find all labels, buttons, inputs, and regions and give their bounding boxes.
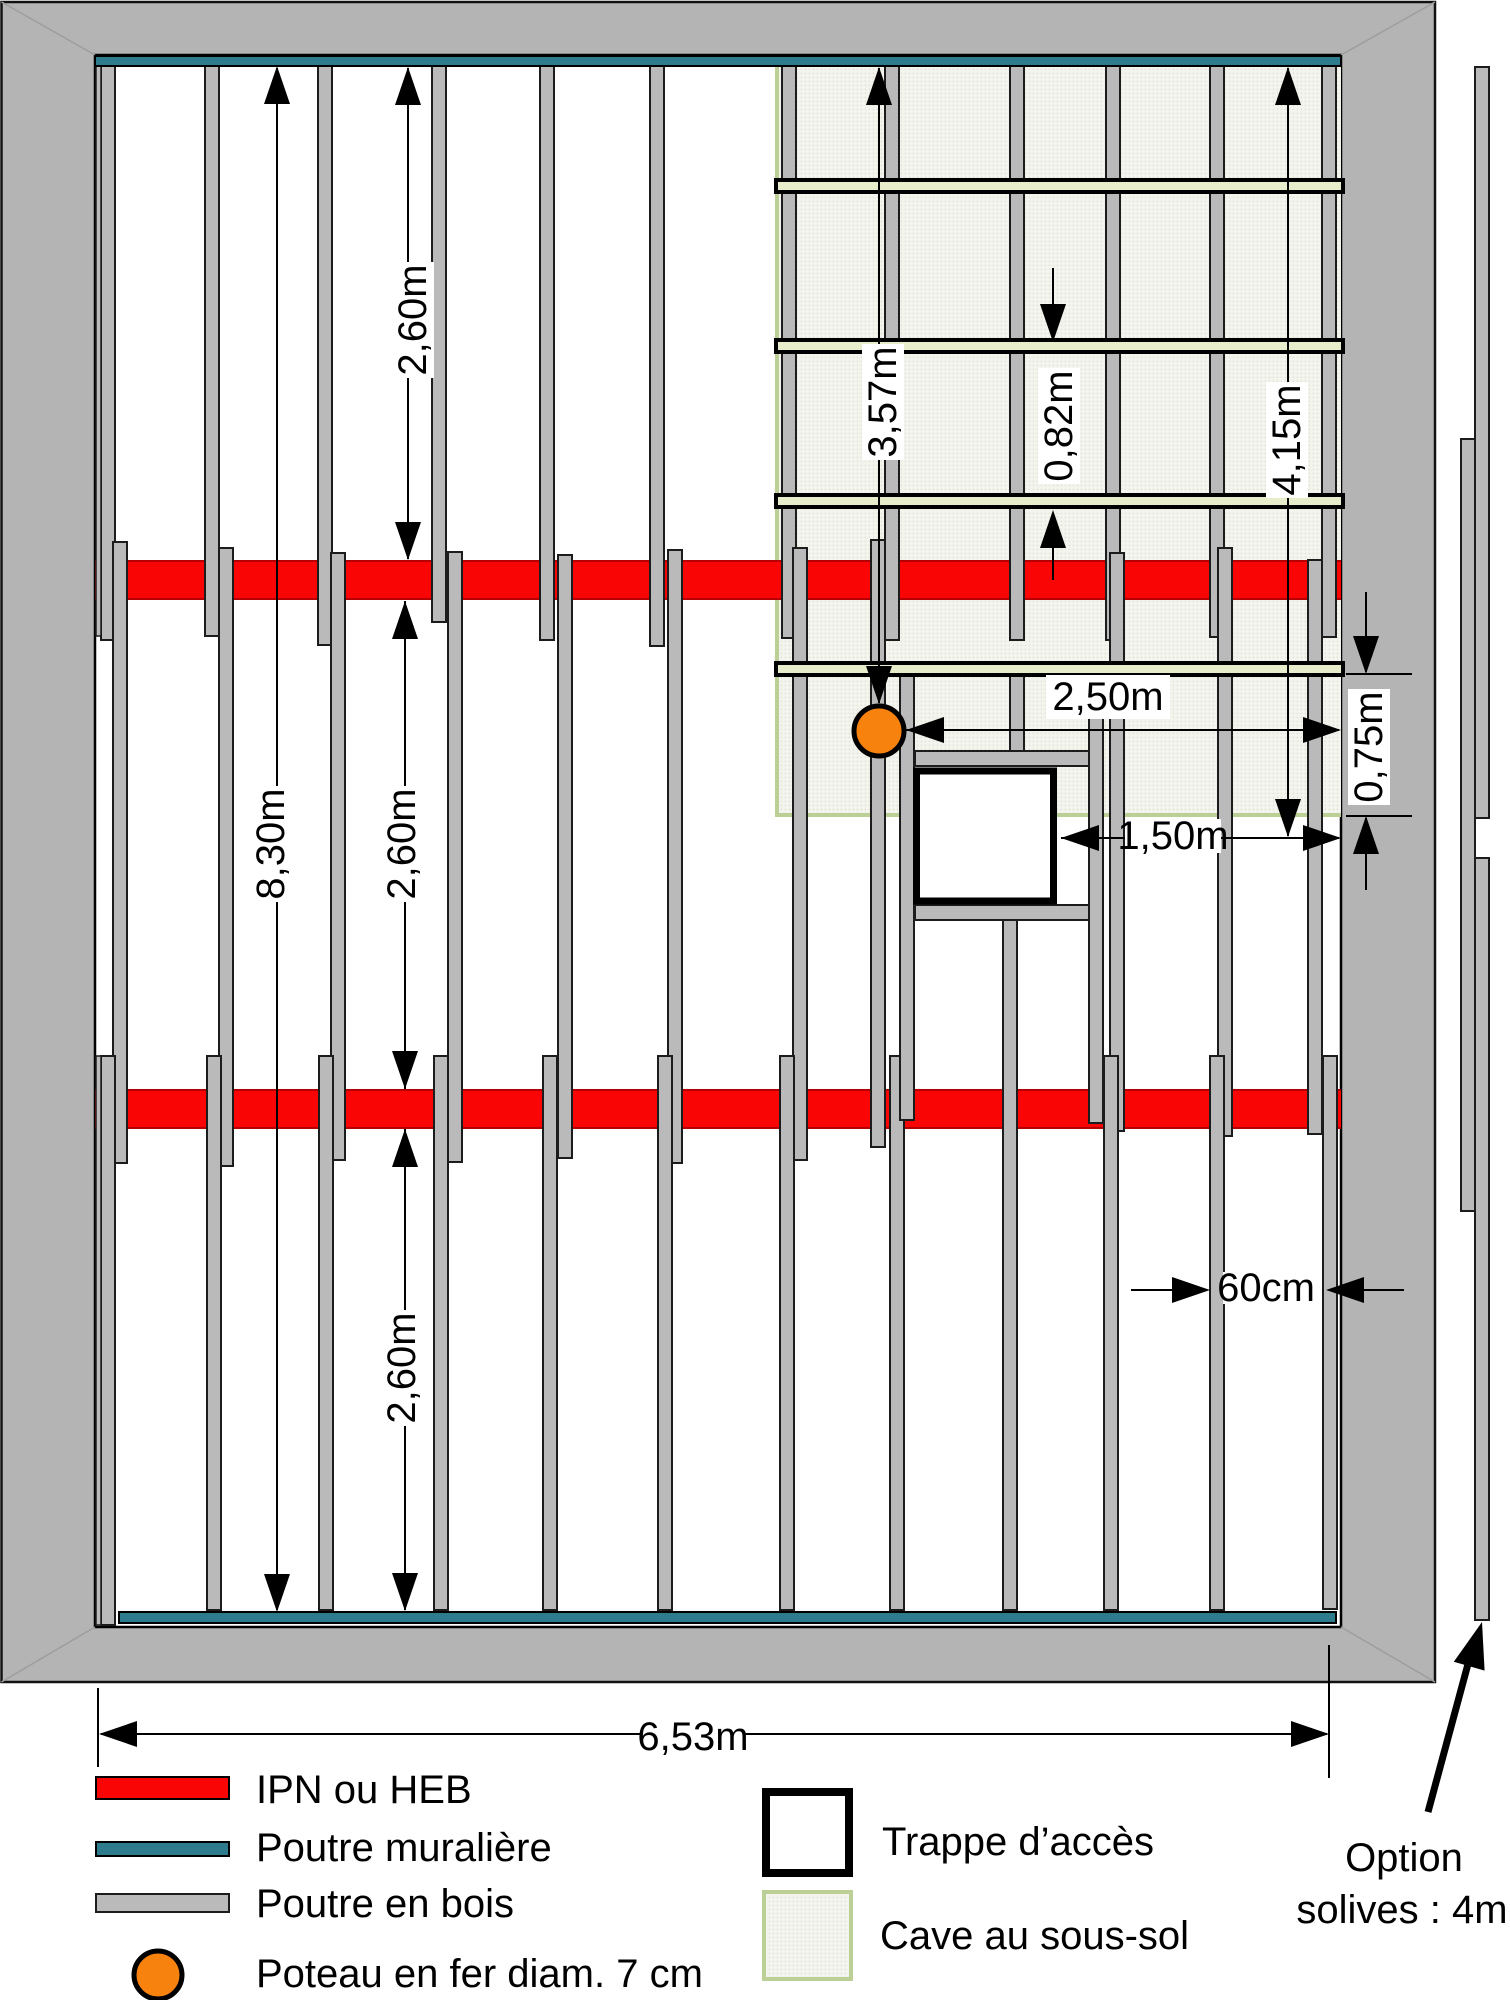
svg-text:0,82m: 0,82m bbox=[1037, 370, 1081, 481]
svg-text:Poutre en bois: Poutre en bois bbox=[256, 1882, 514, 1926]
svg-text:0,75m: 0,75m bbox=[1347, 691, 1391, 802]
svg-text:2,60m: 2,60m bbox=[391, 264, 435, 375]
svg-text:Poutre muralière: Poutre muralière bbox=[256, 1826, 552, 1870]
svg-text:IPN ou HEB: IPN ou HEB bbox=[256, 1768, 472, 1812]
svg-text:solives : 4m: solives : 4m bbox=[1296, 1888, 1507, 1932]
svg-text:1,50m: 1,50m bbox=[1117, 814, 1228, 858]
svg-text:2,60m: 2,60m bbox=[380, 1312, 424, 1423]
svg-text:3,57m: 3,57m bbox=[861, 346, 905, 457]
svg-text:8,30m: 8,30m bbox=[249, 788, 293, 899]
svg-text:60cm: 60cm bbox=[1217, 1266, 1315, 1310]
svg-text:Trappe d’accès: Trappe d’accès bbox=[882, 1820, 1154, 1864]
svg-text:2,50m: 2,50m bbox=[1052, 675, 1163, 719]
svg-text:Option: Option bbox=[1345, 1836, 1463, 1880]
svg-text:Poteau en fer diam. 7 cm: Poteau en fer diam. 7 cm bbox=[256, 1952, 703, 1996]
svg-text:4,15m: 4,15m bbox=[1265, 384, 1309, 495]
svg-text:6,53m: 6,53m bbox=[637, 1715, 748, 1759]
svg-text:Cave au sous-sol: Cave au sous-sol bbox=[880, 1914, 1189, 1958]
svg-text:2,60m: 2,60m bbox=[380, 788, 424, 899]
